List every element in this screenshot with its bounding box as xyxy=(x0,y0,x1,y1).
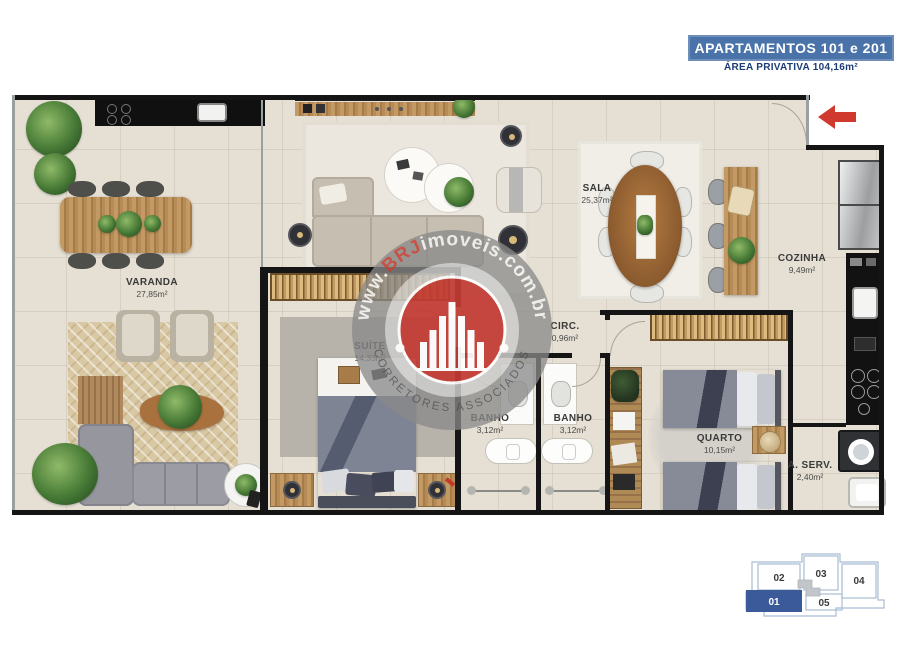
room-area: 9,49m² xyxy=(764,265,840,275)
shower-head-icon xyxy=(521,486,530,495)
pillow xyxy=(737,464,757,510)
armchair xyxy=(116,310,160,362)
shower-bar xyxy=(470,490,528,492)
keyplan-unit-02: 02 xyxy=(773,573,785,584)
varanda-counter xyxy=(95,100,265,126)
wall xyxy=(12,95,810,100)
utensil-icon xyxy=(850,258,862,266)
keyplan-unit-04: 04 xyxy=(853,576,865,587)
armchair xyxy=(496,167,542,213)
cushion-seam xyxy=(196,464,198,504)
plant xyxy=(116,211,142,237)
desk-unit xyxy=(608,367,642,509)
door-arc xyxy=(610,321,645,356)
plant xyxy=(26,101,82,157)
nightstand xyxy=(418,473,456,507)
single-bed xyxy=(663,462,781,512)
lamp-glow xyxy=(290,488,295,493)
entry-arrow-icon xyxy=(818,103,858,131)
tub-basin xyxy=(856,484,878,501)
table-decor xyxy=(396,159,410,170)
cushion-seam xyxy=(164,464,166,504)
shower-head-icon xyxy=(545,486,554,495)
room-area: 25,37m² xyxy=(562,195,632,205)
console-decor xyxy=(303,104,312,113)
room-name: VARANDA xyxy=(107,277,197,289)
room-name: SALA xyxy=(562,183,632,195)
ring-dot xyxy=(396,344,405,353)
dining-chair xyxy=(136,181,164,197)
armchair xyxy=(170,310,214,362)
room-label-varanda: VARANDA 27,85m² xyxy=(107,277,197,299)
burner-icon xyxy=(107,115,117,125)
keyplan-unit-05: 05 xyxy=(818,598,830,609)
lamp-glow xyxy=(297,232,303,238)
watermark-logo: www.BRJimoveis.com.br CORRETORES ASSOCIA… xyxy=(330,208,574,452)
varanda-dining-table xyxy=(60,197,192,253)
bar-counter xyxy=(724,167,758,295)
wall xyxy=(600,310,788,315)
wardrobe xyxy=(650,313,788,341)
wood-bench xyxy=(78,376,123,424)
headboard xyxy=(318,496,416,508)
cutting-board xyxy=(726,185,755,217)
washer-door xyxy=(848,439,874,465)
burner-icon xyxy=(851,369,865,383)
pillow xyxy=(319,183,348,205)
knob-icon xyxy=(399,107,403,111)
armchair-seat xyxy=(122,314,154,356)
headboard xyxy=(775,370,781,428)
pillow xyxy=(757,374,775,424)
balcony-glass-wall xyxy=(12,95,15,510)
door-arc xyxy=(572,358,601,387)
throw-blanket xyxy=(509,168,523,212)
burner-icon xyxy=(851,385,865,399)
plan-title-badge: APARTAMENTOS 101 e 201 xyxy=(688,35,894,61)
plant xyxy=(158,385,202,429)
pillow xyxy=(757,465,775,509)
wall xyxy=(260,267,268,515)
ring-dot xyxy=(500,344,509,353)
room-label-cozinha: COZINHA 9,49m² xyxy=(764,253,840,275)
lamp-glow xyxy=(509,134,515,140)
wall xyxy=(788,310,793,515)
plan-subtitle: ÁREA PRIVATIVA 104,16m² xyxy=(688,62,894,73)
door-arc xyxy=(772,103,807,144)
plant xyxy=(444,177,474,207)
room-name: A. SERV. xyxy=(774,460,846,472)
fridge-divider xyxy=(840,204,882,206)
room-label-sala: SALA 25,37m² xyxy=(562,183,632,205)
pillow xyxy=(394,470,414,492)
plant xyxy=(611,370,639,402)
dining-chair xyxy=(68,253,96,269)
pillow xyxy=(737,372,757,426)
wall xyxy=(12,510,884,515)
sink-icon xyxy=(197,103,227,122)
washer-drum xyxy=(853,444,869,460)
room-area: 10,15m² xyxy=(672,445,767,455)
red-decor xyxy=(445,477,455,486)
counter-decor xyxy=(854,337,876,351)
sink-icon xyxy=(852,287,878,319)
pendant-lamp-icon xyxy=(500,125,522,147)
dining-chair xyxy=(136,253,164,269)
plant xyxy=(144,215,161,232)
room-area: 27,85m² xyxy=(107,289,197,299)
armchair-seat xyxy=(176,314,208,356)
wall xyxy=(879,145,884,515)
room-label-quarto: QUARTO 10,15m² xyxy=(672,433,767,455)
plant xyxy=(98,215,116,233)
tv-console xyxy=(295,102,475,116)
room-name: QUARTO xyxy=(672,433,767,445)
table-lamp-icon xyxy=(428,481,446,499)
burner-icon xyxy=(121,104,131,114)
burner-icon xyxy=(121,115,131,125)
dining-chair xyxy=(68,181,96,197)
keyplan-unit-01: 01 xyxy=(768,597,780,608)
plant xyxy=(637,215,653,235)
room-area: 2,40m² xyxy=(774,472,846,482)
console-decor xyxy=(316,104,325,113)
shower-bar xyxy=(548,490,606,492)
shower-head-icon xyxy=(467,486,476,495)
nightstand xyxy=(270,473,314,507)
table-lamp-icon xyxy=(283,481,301,499)
duvet xyxy=(663,370,737,428)
dining-chair xyxy=(102,253,130,269)
paper-decor xyxy=(611,442,638,465)
laptop-icon xyxy=(613,474,635,490)
plant xyxy=(728,237,755,264)
plant xyxy=(32,443,98,505)
burner-icon xyxy=(107,104,117,114)
unit-keyplan: 02 03 04 01 05 xyxy=(740,546,892,634)
floorplan-page: { "header": { "title": "APARTAMENTOS 101… xyxy=(0,0,920,650)
single-bed xyxy=(663,370,781,428)
table-decor xyxy=(412,171,423,181)
sectional-sofa-horizontal xyxy=(132,462,230,506)
fridge-icon xyxy=(838,160,884,250)
lamp-glow xyxy=(435,488,440,493)
dining-chair xyxy=(102,181,130,197)
burner-icon xyxy=(858,403,870,415)
paper-decor xyxy=(613,412,635,430)
utensil-icon xyxy=(866,258,876,266)
wall xyxy=(806,145,884,150)
wall xyxy=(788,423,846,427)
keyplan-unit-03: 03 xyxy=(815,569,827,580)
room-label-aserv: A. SERV. 2,40m² xyxy=(774,460,846,482)
knob-icon xyxy=(375,107,379,111)
duvet xyxy=(663,462,737,512)
room-name: COZINHA xyxy=(764,253,840,265)
floor-lamp-icon xyxy=(288,223,312,247)
entry-door-frame xyxy=(806,95,809,147)
knob-icon xyxy=(387,107,391,111)
balcony-sliding-door xyxy=(261,100,263,267)
